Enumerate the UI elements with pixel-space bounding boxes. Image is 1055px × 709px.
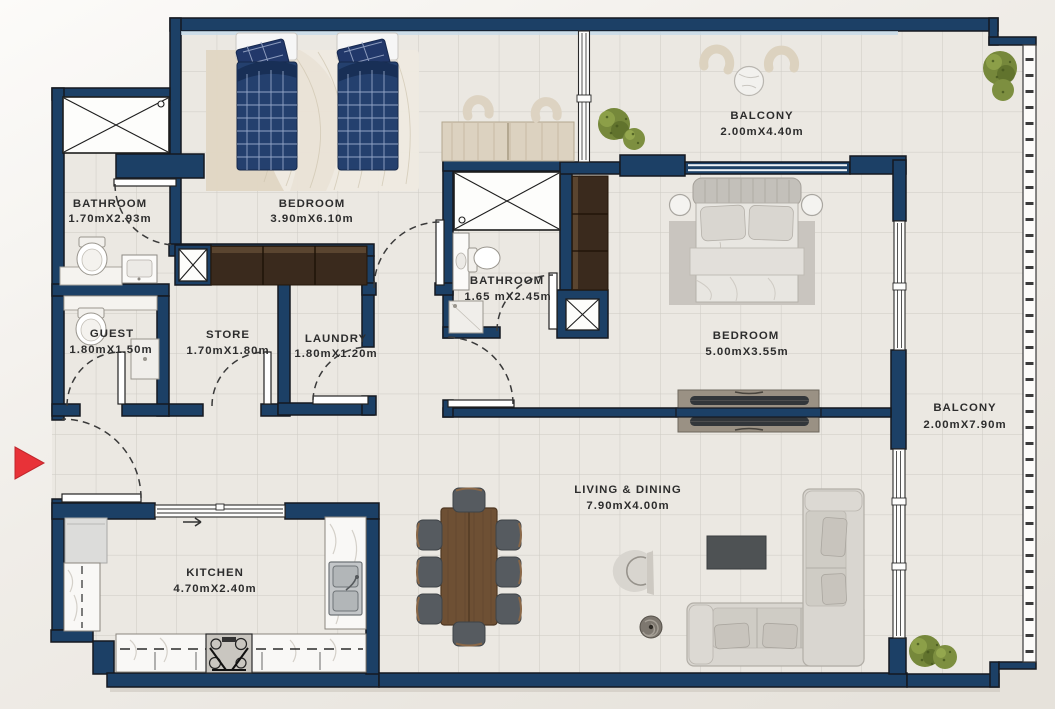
svg-text:3.90mX6.10m: 3.90mX6.10m xyxy=(270,213,353,225)
svg-text:5.00mX3.55m: 5.00mX3.55m xyxy=(705,346,788,358)
svg-text:STORE: STORE xyxy=(206,329,250,341)
svg-text:2.00mX4.40m: 2.00mX4.40m xyxy=(720,126,803,138)
svg-text:7.90mX4.00m: 7.90mX4.00m xyxy=(586,500,669,512)
svg-text:KITCHEN: KITCHEN xyxy=(186,567,244,579)
svg-text:BALCONY: BALCONY xyxy=(933,402,996,414)
svg-text:1.65 mX2.45m: 1.65 mX2.45m xyxy=(464,291,551,303)
svg-text:LIVING & DINING: LIVING & DINING xyxy=(574,484,681,496)
svg-text:BALCONY: BALCONY xyxy=(730,110,793,122)
svg-text:1.70mX1.80m: 1.70mX1.80m xyxy=(186,345,269,357)
svg-text:2.00mX7.90m: 2.00mX7.90m xyxy=(923,419,1006,431)
svg-text:BEDROOM: BEDROOM xyxy=(279,198,345,210)
svg-text:BATHROOM: BATHROOM xyxy=(470,275,544,287)
svg-text:GUEST: GUEST xyxy=(90,328,134,340)
svg-text:1.80mX1.50m: 1.80mX1.50m xyxy=(69,344,152,356)
svg-text:LAUNDRY: LAUNDRY xyxy=(305,333,367,345)
svg-text:1.70mX2.93m: 1.70mX2.93m xyxy=(68,213,151,225)
svg-text:BEDROOM: BEDROOM xyxy=(713,330,779,342)
svg-text:BATHROOM: BATHROOM xyxy=(73,198,147,210)
svg-text:1.80mX1.20m: 1.80mX1.20m xyxy=(294,348,377,360)
svg-text:4.70mX2.40m: 4.70mX2.40m xyxy=(173,583,256,595)
